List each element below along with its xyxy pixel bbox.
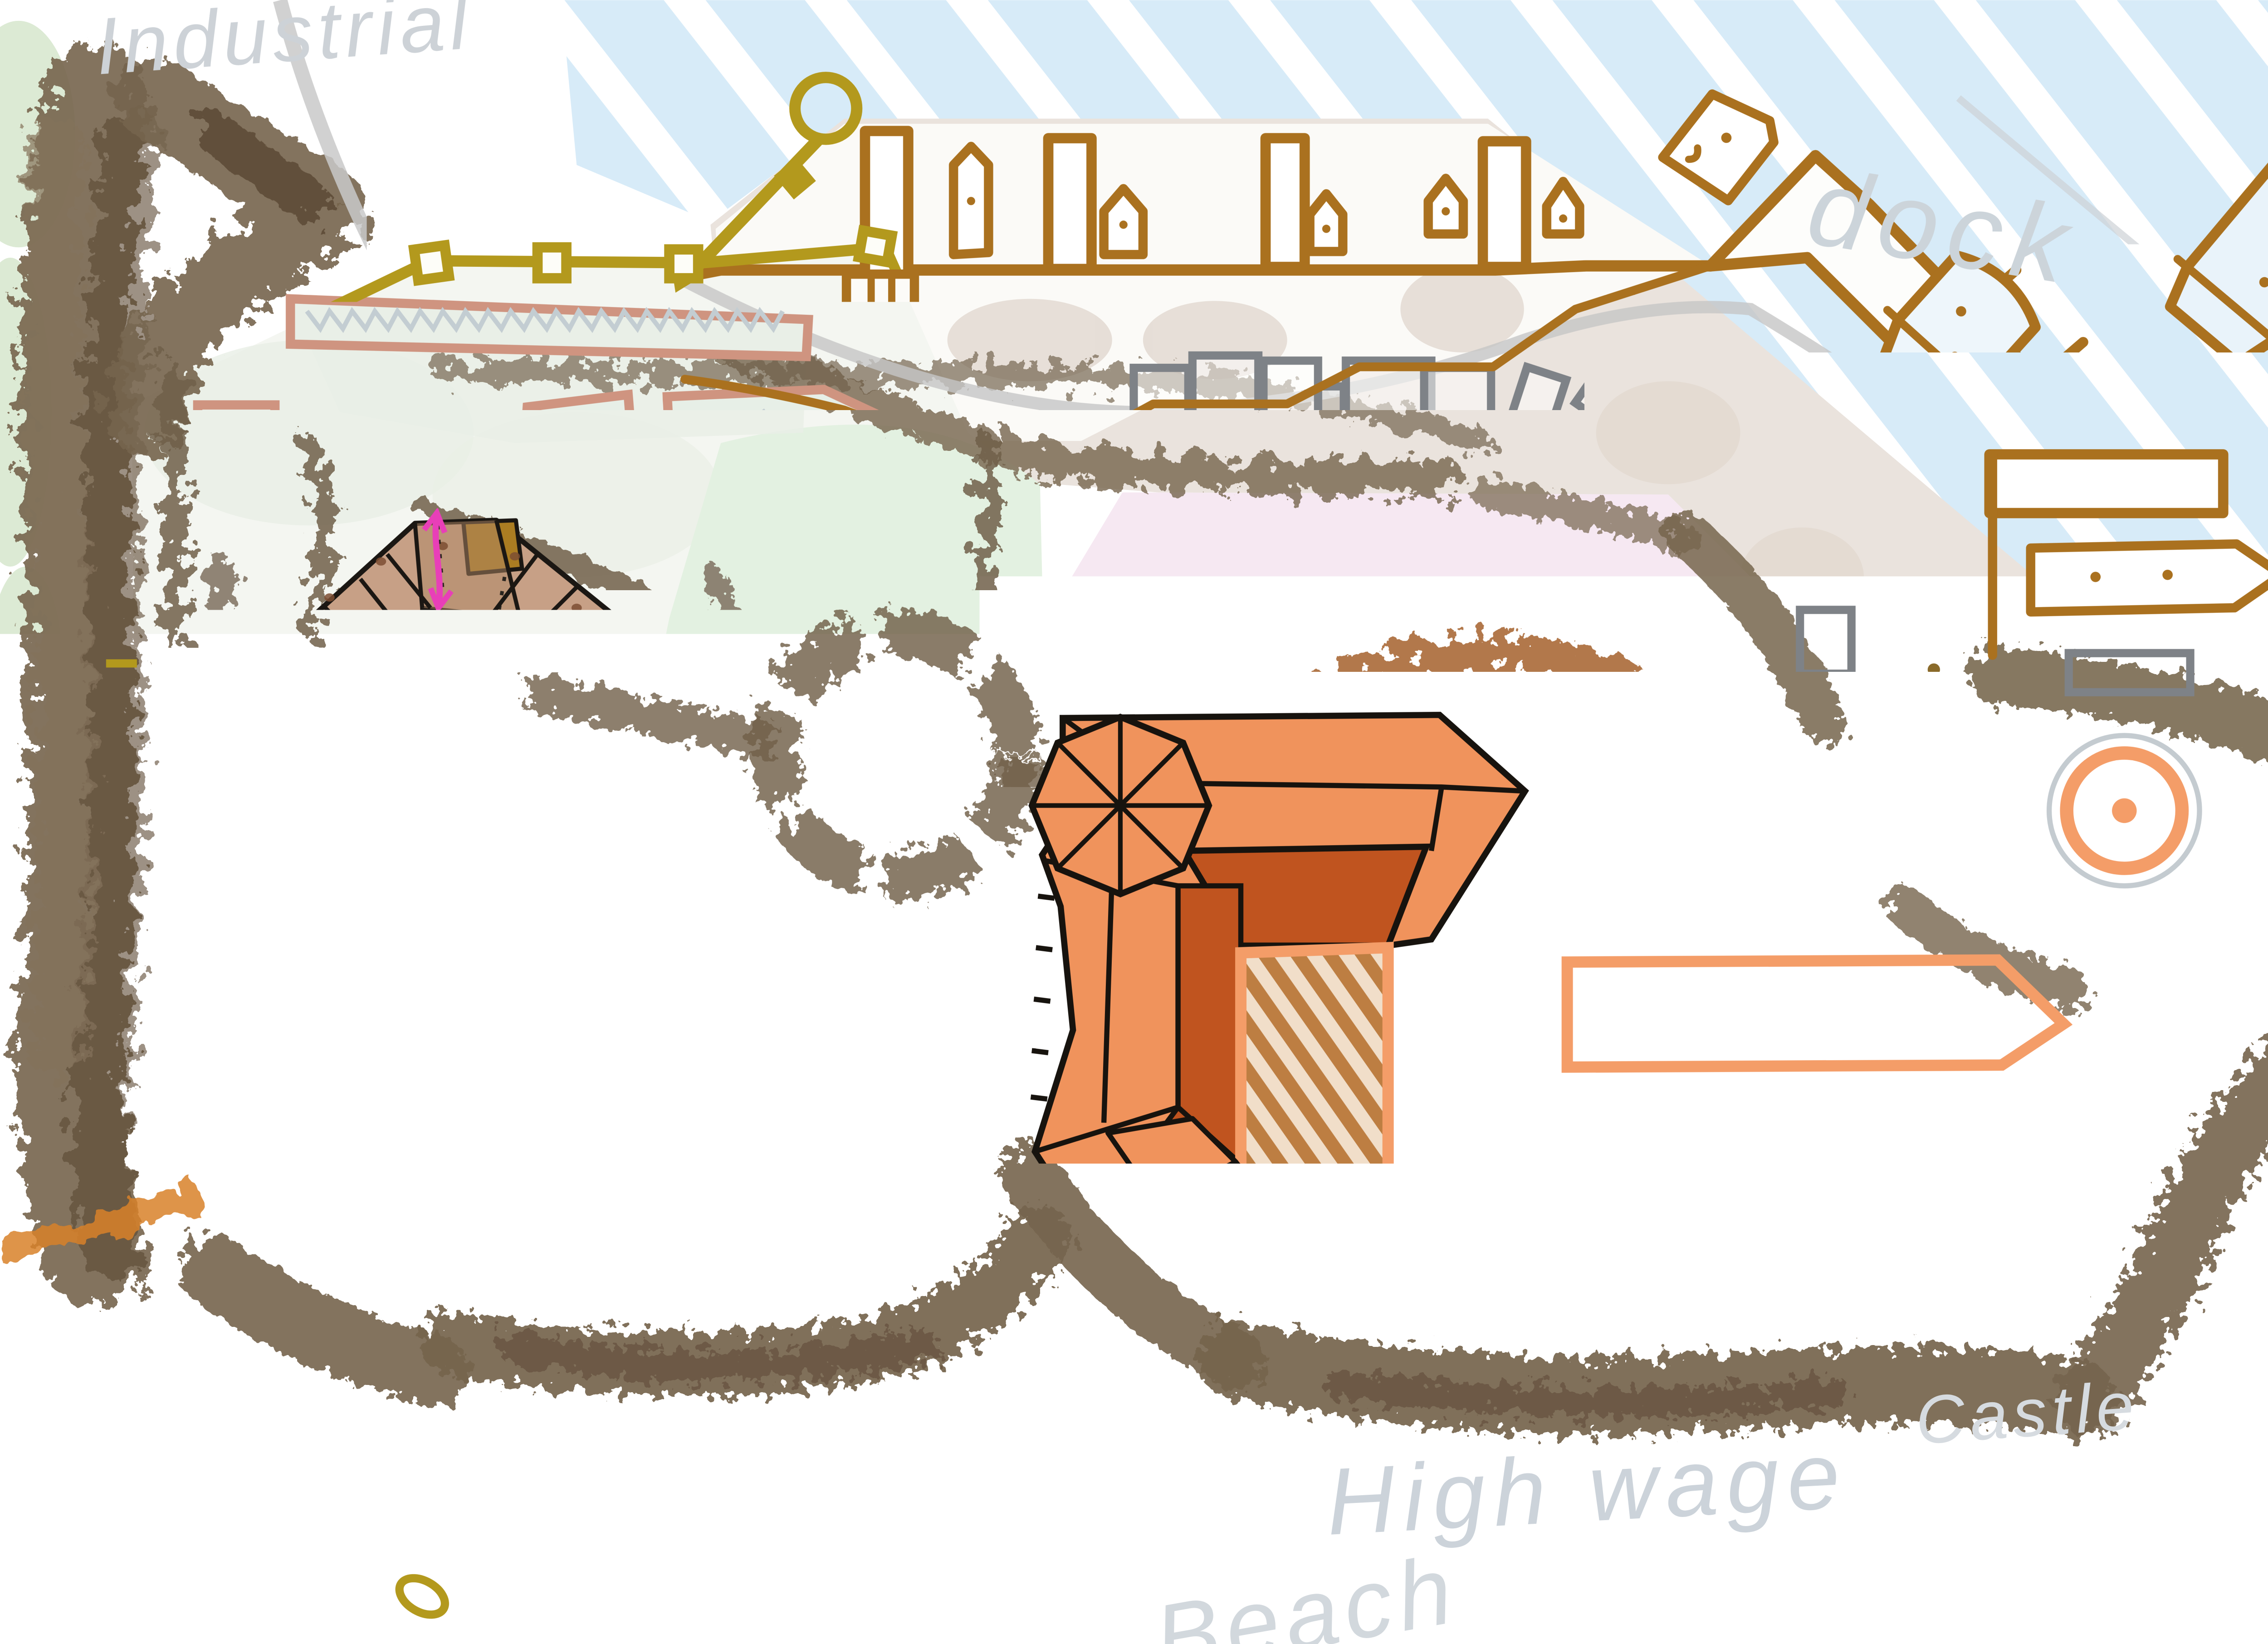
svg-text:Castle: Castle xyxy=(1913,1367,2141,1458)
